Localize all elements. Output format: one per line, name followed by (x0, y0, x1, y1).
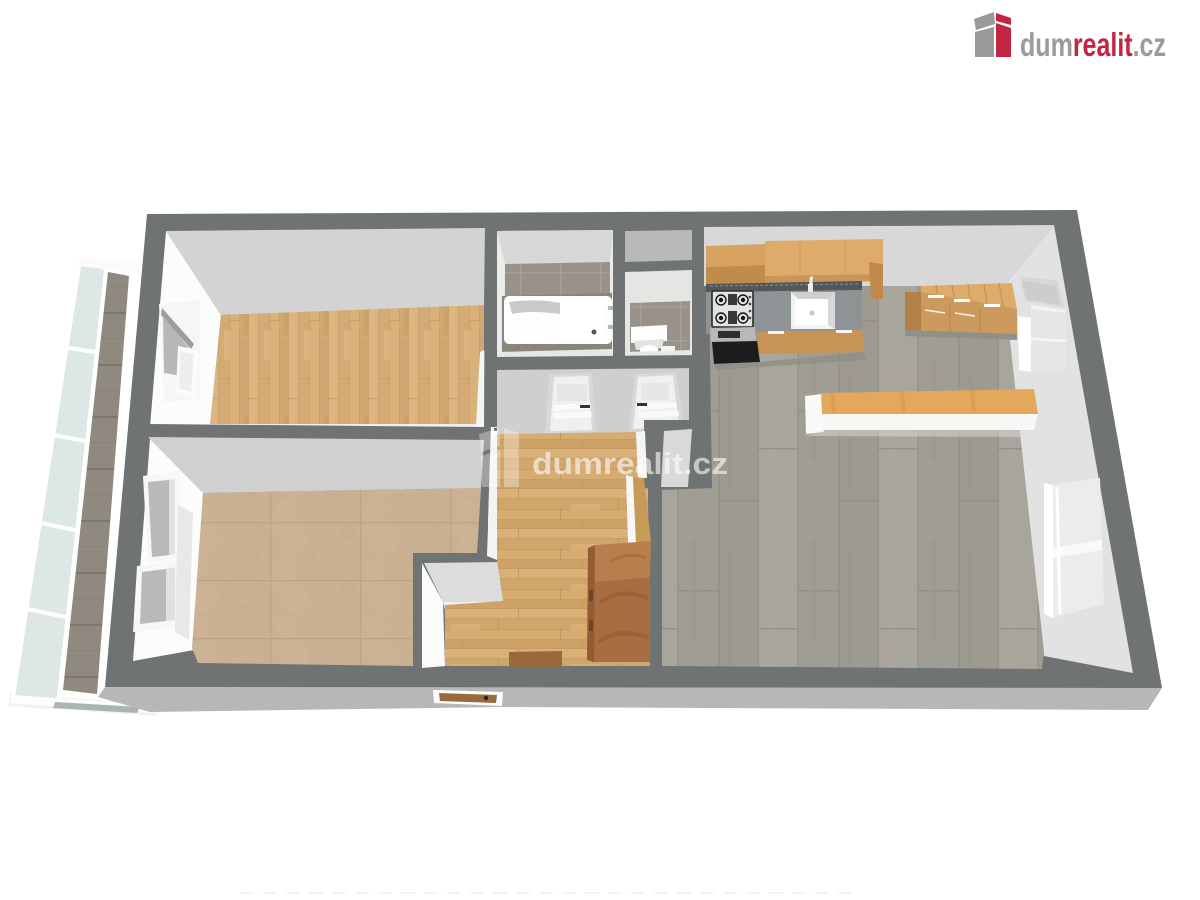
svg-text:dumrealit.cz: dumrealit.cz (532, 446, 728, 481)
svg-text:dumrealit.cz: dumrealit.cz (1020, 26, 1166, 63)
